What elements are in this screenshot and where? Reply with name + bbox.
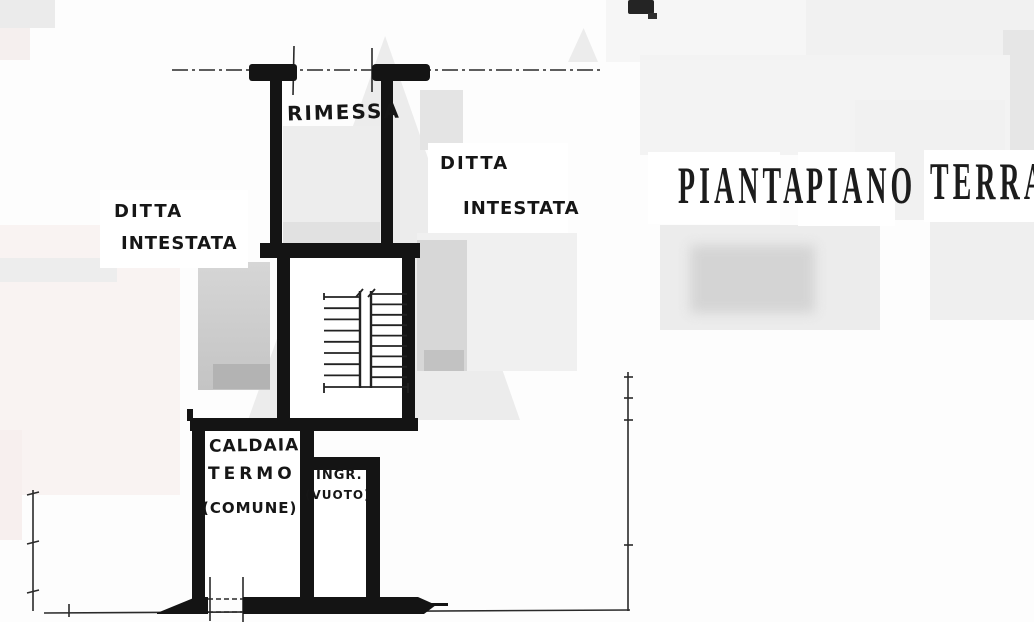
wall-middle: [300, 429, 314, 601]
owner-label-right-line1: DITTA: [440, 153, 509, 174]
room-label-caldaia-line3: (COMUNE): [202, 499, 297, 517]
room-label-caldaia-line2: TERMO: [208, 464, 296, 484]
room-label-caldaia-line1: CALDAIA: [209, 435, 300, 457]
wall-stair-right: [402, 245, 415, 430]
wall-bottom-left: [157, 597, 208, 614]
rimessa-interior-wash: [283, 222, 380, 245]
room-label-rimessa: RIMESSA: [287, 99, 401, 126]
wall-bottom-tail: [424, 603, 448, 606]
page-title-word-pianta: PIANTA: [678, 158, 807, 217]
floorplan-drawing: [0, 0, 1034, 622]
owner-label-right-line2: INTESTATA: [463, 198, 580, 219]
wall-rimessa-left: [270, 78, 282, 246]
scanned-floorplan-page: RIMESSA DITTA INTESTATA DITTA INTESTATA …: [0, 0, 1034, 622]
page-title-word-terra: TERRA: [930, 154, 1034, 213]
room-label-ingresso-line1: INGR.: [316, 468, 363, 483]
stairwell-interior: [290, 258, 402, 420]
room-label-ingresso-line2: (VUOTO): [305, 488, 371, 502]
owner-label-left-line1: DITTA: [114, 201, 183, 222]
wall-bottom-right: [243, 597, 436, 614]
page-title-word-piano: PIANO: [806, 158, 916, 217]
owner-label-left-line2: INTESTATA: [121, 233, 238, 254]
wall-end-tick: [187, 409, 193, 421]
wall-stair-left: [277, 256, 290, 426]
wall-top-stub-right: [372, 64, 430, 81]
wall-stair-top: [260, 243, 420, 258]
